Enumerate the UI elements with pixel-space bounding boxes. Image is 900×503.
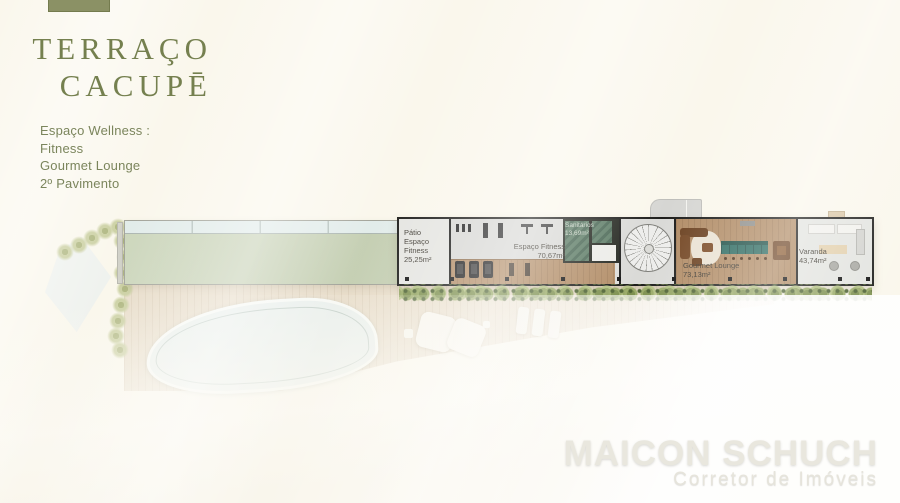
bar-stool [764,257,767,260]
label-espaco-fitness: Espaço Fitness 70,67m² [493,242,565,260]
stair-landing [650,199,702,219]
deck-table [404,329,413,338]
green-roof [124,220,398,285]
marketing-floorplan-page: TERRAÇO CACUPĒ Espaço Wellness : Fitness… [0,0,900,503]
treadmill [469,261,479,278]
side-wall [117,222,123,284]
varanda-chair [850,261,860,271]
bar-stool [732,257,735,260]
sanitario-anteroom [592,245,616,261]
page-title: TERRAÇO CACUPĒ [28,30,212,104]
treadmill [455,261,465,278]
varanda-sofa [808,224,835,234]
bar-stool [724,257,727,260]
lounge-armchair [702,243,713,252]
sun-lounger [547,310,561,338]
exercise-mat [525,263,530,276]
label-gourmet-lounge: Gourmet Lounge 73,13m² [683,261,767,279]
spin-bike [521,224,533,227]
building-outline: Pátio Espaço Fitness 25,25m² Espaço Fitn… [397,217,874,286]
room-staircase [619,219,674,284]
column [672,277,676,281]
spiral-staircase [624,224,672,272]
broker-name: MAICON SCHUCH [564,434,878,474]
palm-shrub [111,341,129,359]
tv-panel [740,221,755,226]
amenity-line: Fitness [40,140,150,158]
label-sanitarios: Sanitários 13,69m² [565,222,617,238]
bar-stool [748,257,751,260]
column [617,277,621,281]
broker-watermark: MAICON SCHUCH Corretor de Imóveis [564,434,878,491]
column [561,277,565,281]
title-line1: TERRAÇO [32,31,212,66]
exercise-mat [509,263,514,276]
amenity-line: Gourmet Lounge [40,157,150,175]
bar-counter [721,241,768,254]
column [866,277,870,281]
title-line2: CACUPĒ [28,67,212,104]
column [728,277,732,281]
hedge-row [399,284,872,302]
bar-stool [756,257,759,260]
gym-station [498,223,503,238]
label-varanda: Varanda 43,74m² [799,247,849,265]
varanda-bench [856,229,865,255]
spin-bike [541,224,553,227]
column [838,277,842,281]
column [450,277,454,281]
amenity-line: Espaço Wellness : [40,122,150,140]
column [505,277,509,281]
dumbbell-rack [456,224,473,232]
glass-canopy [125,221,397,234]
column [405,277,409,281]
bar-stool [740,257,743,260]
treadmill [483,261,493,278]
lounge-sofa [680,235,690,259]
dining-table [773,241,790,260]
gym-station [483,223,488,238]
logo-tab [48,0,110,12]
column [783,277,787,281]
amenities-list: Espaço Wellness : Fitness Gourmet Lounge… [40,122,150,192]
deck-table [483,321,490,328]
label-patio-fitness: Pátio Espaço Fitness 25,25m² [404,228,442,264]
amenity-line: 2º Pavimento [40,175,150,193]
